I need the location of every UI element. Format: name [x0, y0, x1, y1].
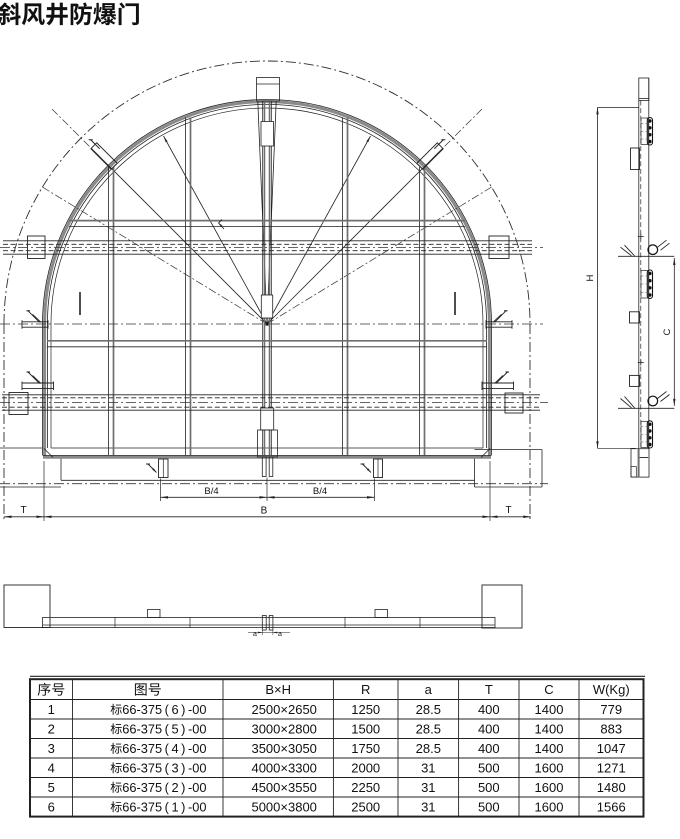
svg-text:4500×3550: 4500×3550 — [251, 780, 316, 795]
svg-text:a: a — [278, 631, 282, 638]
svg-text:a: a — [425, 682, 433, 697]
svg-text:779: 779 — [600, 702, 622, 717]
svg-text:3: 3 — [48, 741, 55, 756]
svg-text:1250: 1250 — [351, 702, 380, 717]
svg-text:500: 500 — [478, 800, 500, 815]
svg-text:B: B — [261, 506, 268, 517]
svg-text:2: 2 — [48, 722, 55, 737]
svg-text:H: H — [585, 274, 596, 281]
svg-text:T: T — [505, 505, 511, 516]
svg-text:2250: 2250 — [351, 780, 380, 795]
svg-text:2000: 2000 — [351, 761, 380, 776]
svg-text:31: 31 — [421, 780, 435, 795]
svg-text:4: 4 — [48, 761, 55, 776]
svg-text:4000×3300: 4000×3300 — [251, 761, 316, 776]
svg-text:2500×2650: 2500×2650 — [251, 702, 316, 717]
svg-text:2500: 2500 — [351, 800, 380, 815]
svg-text:B×H: B×H — [265, 682, 291, 697]
svg-text:400: 400 — [478, 722, 500, 737]
svg-text:3000×2800: 3000×2800 — [251, 722, 316, 737]
svg-text:3500×3050: 3500×3050 — [251, 741, 316, 756]
svg-text:883: 883 — [600, 722, 622, 737]
svg-text:B/4: B/4 — [204, 486, 218, 497]
svg-text:1600: 1600 — [535, 761, 564, 776]
svg-text:R: R — [361, 682, 370, 697]
svg-text:1500: 1500 — [351, 722, 380, 737]
svg-text:66-375 ( 5 ) -00: 66-375 ( 5 ) -00 — [122, 722, 206, 737]
svg-text:1600: 1600 — [535, 780, 564, 795]
svg-text:T: T — [20, 505, 26, 516]
svg-text:66-375 ( 2 ) -00: 66-375 ( 2 ) -00 — [122, 780, 206, 795]
svg-text:B/4: B/4 — [313, 486, 327, 497]
svg-text:1480: 1480 — [597, 780, 626, 795]
svg-text:C: C — [662, 328, 673, 335]
svg-text:T: T — [485, 682, 493, 697]
svg-text:500: 500 — [478, 761, 500, 776]
svg-text:5: 5 — [48, 780, 55, 795]
svg-text:1566: 1566 — [597, 800, 626, 815]
svg-text:a: a — [253, 631, 257, 638]
svg-text:400: 400 — [478, 741, 500, 756]
svg-text:5000×3800: 5000×3800 — [251, 800, 316, 815]
svg-text:66-375 ( 3 ) -00: 66-375 ( 3 ) -00 — [122, 761, 206, 776]
svg-text:28.5: 28.5 — [416, 741, 441, 756]
svg-text:1400: 1400 — [535, 702, 564, 717]
svg-text:1600: 1600 — [535, 800, 564, 815]
svg-text:66-375 ( 1 ) -00: 66-375 ( 1 ) -00 — [122, 800, 206, 815]
svg-text:1047: 1047 — [597, 741, 626, 756]
svg-text:400: 400 — [478, 702, 500, 717]
svg-text:66-375 ( 6 ) -00: 66-375 ( 6 ) -00 — [122, 702, 206, 717]
svg-text:W(Kg): W(Kg) — [593, 682, 630, 697]
svg-text:31: 31 — [421, 800, 435, 815]
svg-text:1271: 1271 — [597, 761, 626, 776]
svg-text:1400: 1400 — [535, 741, 564, 756]
svg-text:66-375 ( 4 ) -00: 66-375 ( 4 ) -00 — [122, 741, 206, 756]
svg-text:28.5: 28.5 — [416, 702, 441, 717]
svg-text:C: C — [544, 682, 553, 697]
svg-text:500: 500 — [478, 780, 500, 795]
svg-text:1: 1 — [48, 702, 55, 717]
svg-text:31: 31 — [421, 761, 435, 776]
svg-text:28.5: 28.5 — [416, 722, 441, 737]
svg-text:1400: 1400 — [535, 722, 564, 737]
svg-text:6: 6 — [48, 800, 55, 815]
svg-text:1750: 1750 — [351, 741, 380, 756]
